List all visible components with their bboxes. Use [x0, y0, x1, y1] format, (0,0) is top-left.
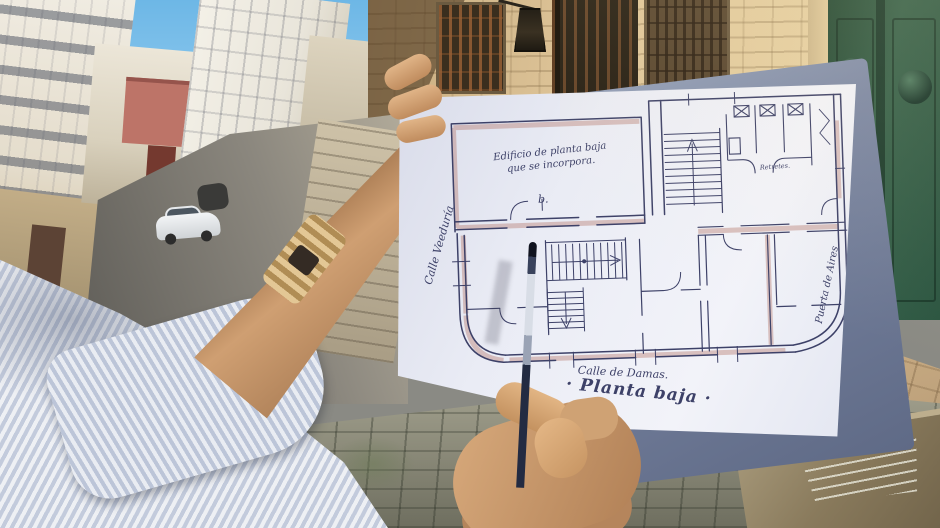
street-photo-scene: Edificio de planta baja que se incorpora…	[0, 0, 940, 528]
floor-plan-paper: Edificio de planta baja que se incorpora…	[390, 84, 856, 440]
floor-plan-drawing: Edificio de planta baja que se incorpora…	[388, 80, 855, 432]
car-wheel	[165, 233, 177, 245]
parked-car	[154, 203, 221, 246]
marker-b: b.	[538, 193, 549, 207]
door-panel	[892, 18, 936, 302]
door-knocker	[898, 70, 932, 104]
dark-doorway	[552, 0, 638, 94]
iron-window-grille-left	[436, 2, 506, 94]
car-wheel	[201, 230, 213, 242]
iron-window-grille-right	[644, 0, 730, 88]
watch-face	[287, 244, 321, 277]
